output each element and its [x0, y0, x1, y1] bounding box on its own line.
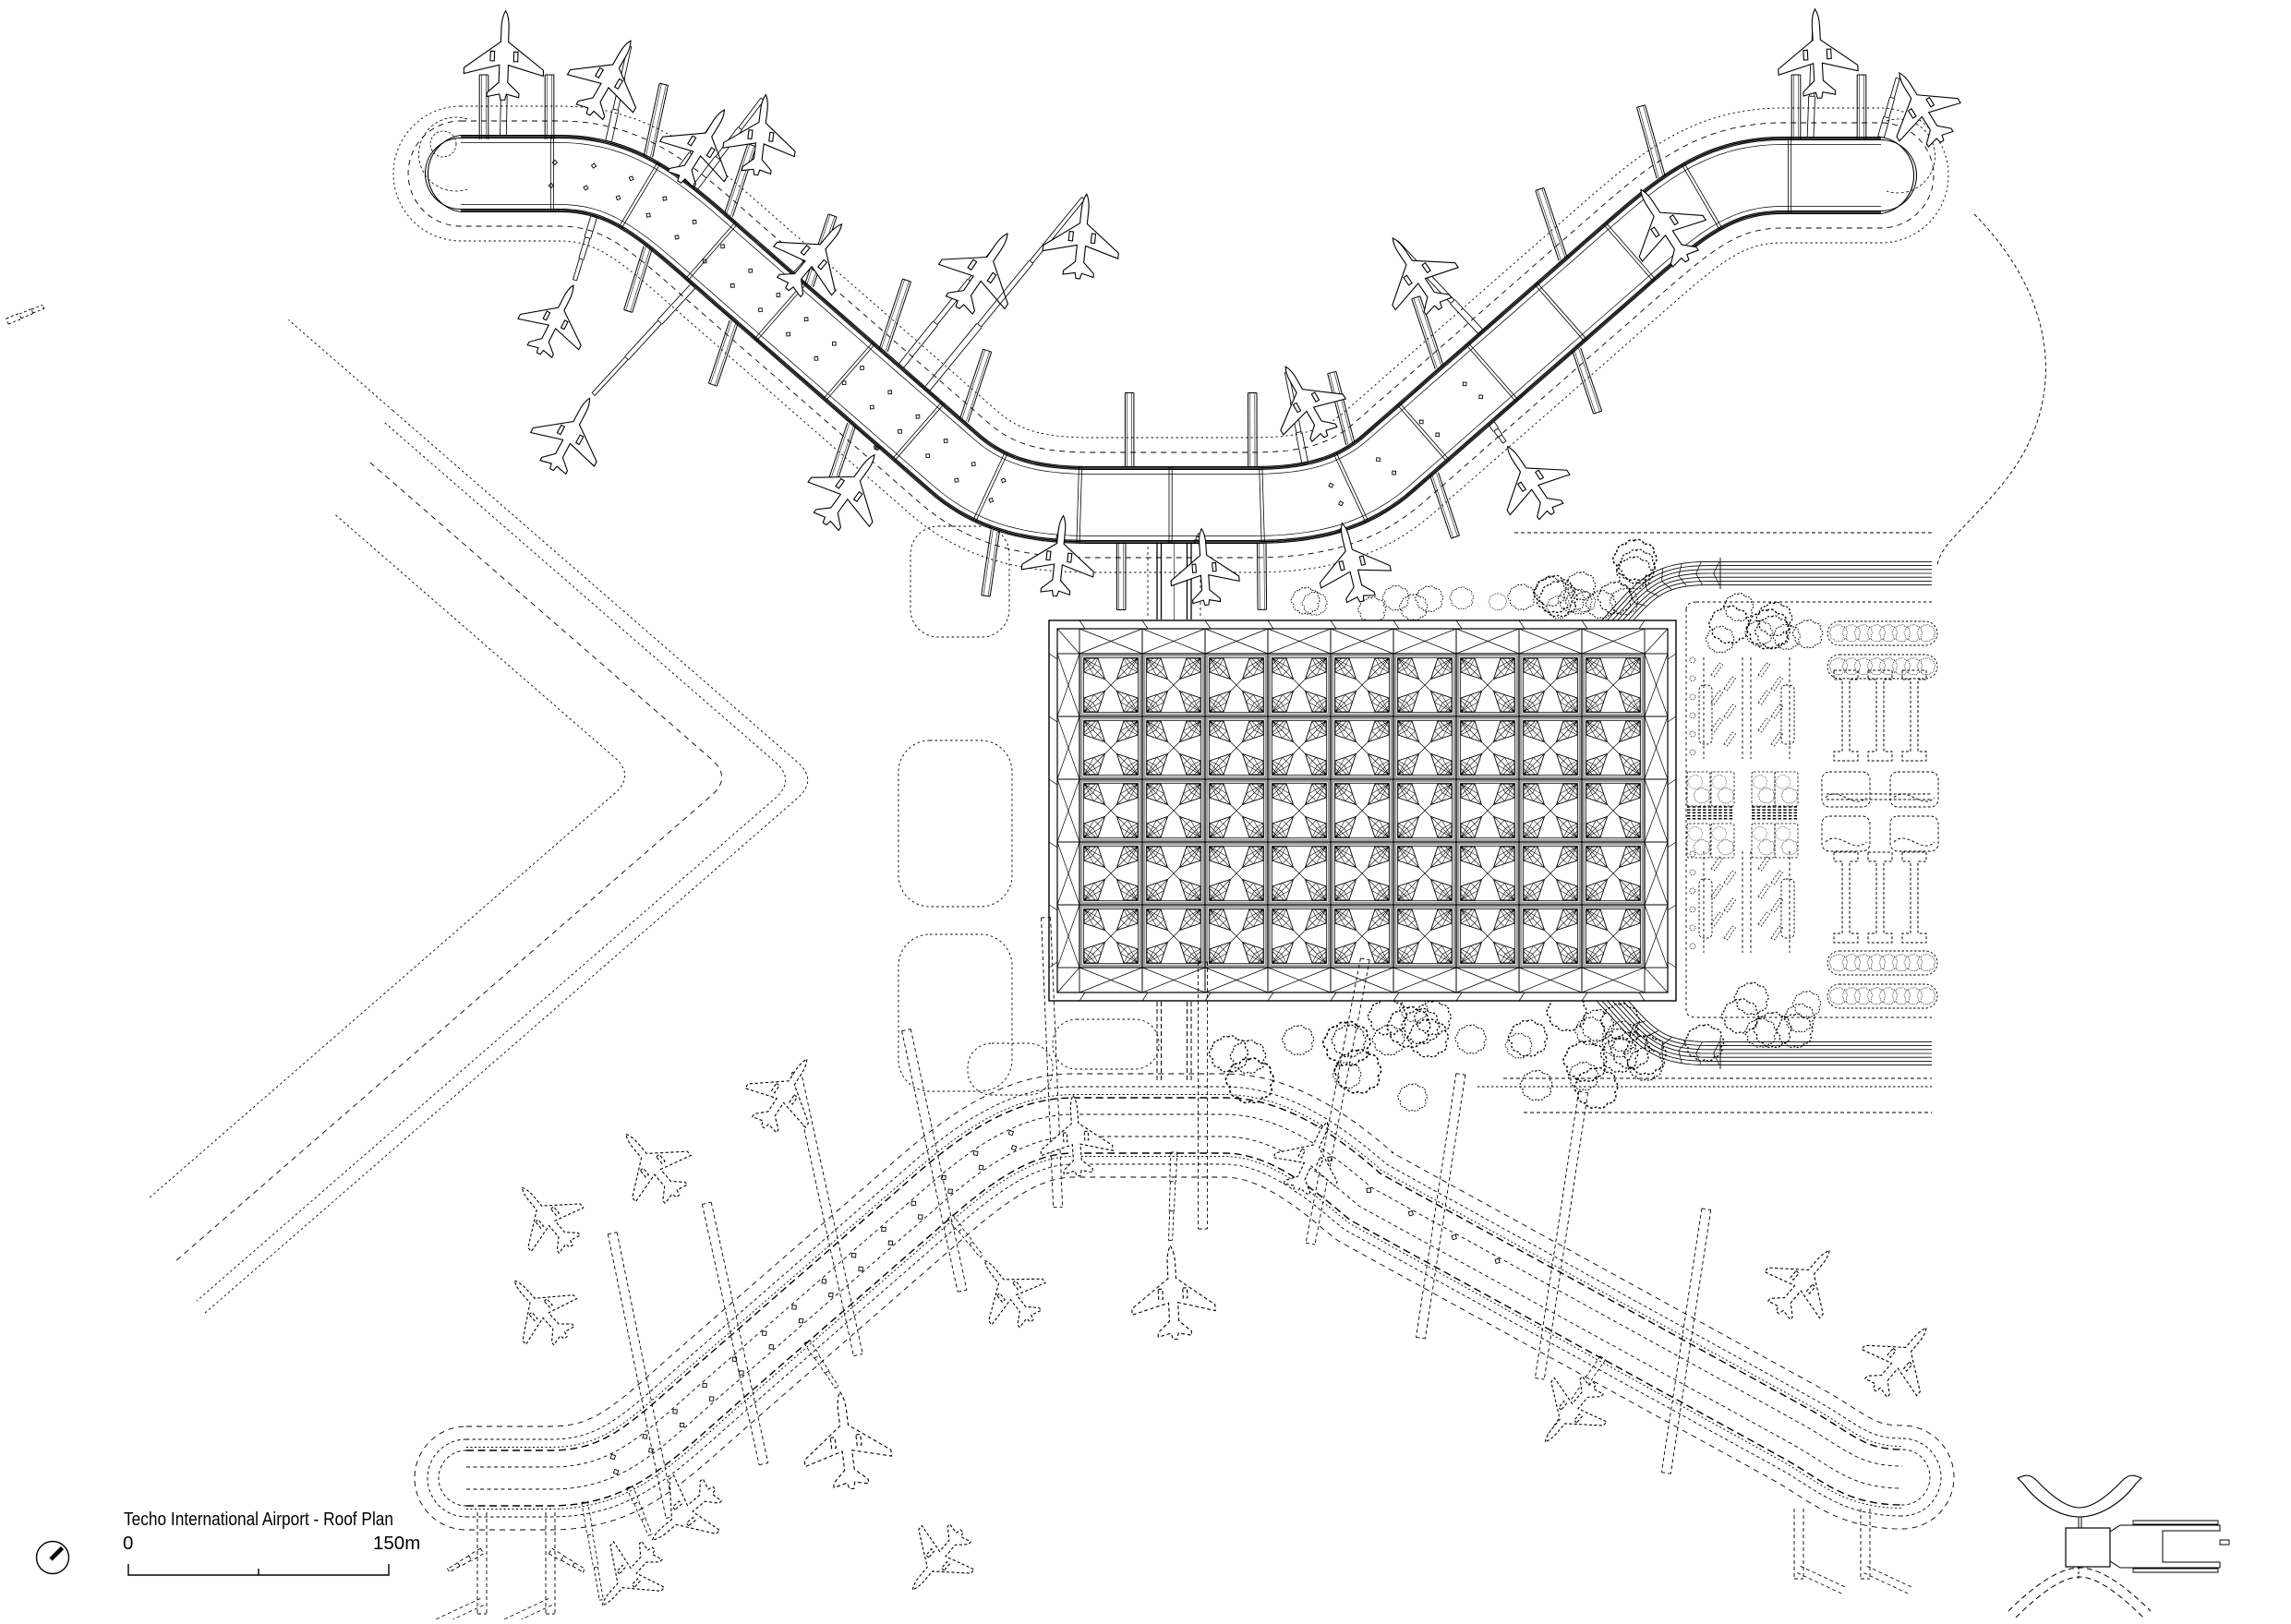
svg-text:150m: 150m: [373, 1533, 420, 1554]
svg-text:0: 0: [123, 1533, 133, 1554]
svg-text:Techo International Airport -: Techo International Airport - Roof Plan: [124, 1509, 393, 1530]
